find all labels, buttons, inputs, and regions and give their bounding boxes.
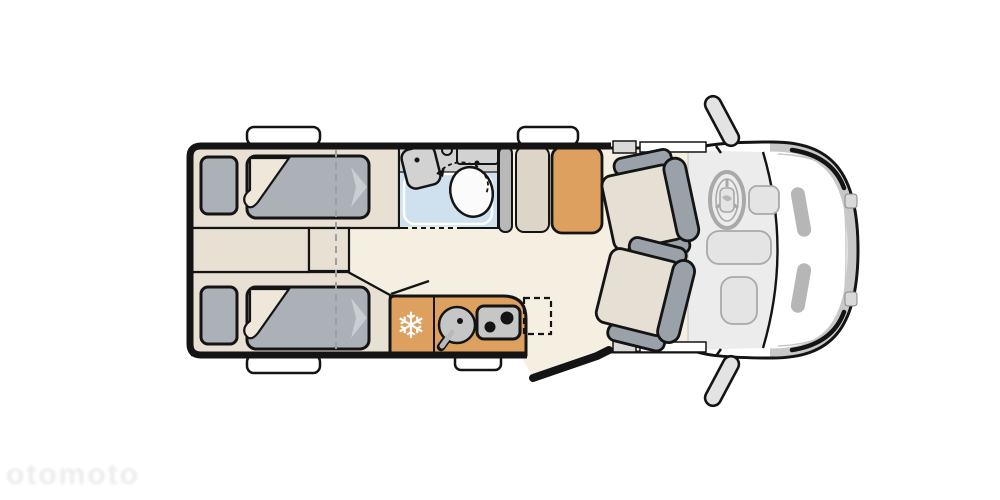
side-mirror-bottom (702, 353, 741, 408)
gear-console (749, 186, 779, 214)
basin-faucet-dot (415, 158, 420, 163)
pillow (201, 157, 237, 214)
door-window-top-large (640, 142, 706, 152)
toilet-flush-dot (475, 161, 480, 166)
dashboard-panel-mid (707, 231, 771, 264)
faucet-dot (457, 318, 463, 324)
stove (477, 306, 520, 339)
door-window-top-small (613, 141, 636, 153)
wardrobe-beige (516, 147, 549, 232)
burner-large (501, 312, 514, 325)
kitchen-sink (439, 307, 475, 343)
freezer-icon: ❄ (396, 306, 426, 347)
front-tab-lower (845, 292, 857, 306)
wardrobe-orange (552, 147, 602, 233)
burner-small (485, 322, 496, 333)
bed-bottom (201, 287, 369, 349)
front-tab-upper (845, 194, 857, 208)
roof-hatch-rear (247, 127, 320, 145)
dashboard-zone (688, 150, 779, 350)
pillow (201, 287, 237, 344)
dashboard-panel-low (721, 277, 757, 324)
floorplan-page: otomoto (0, 0, 1000, 500)
watermark: otomoto (6, 458, 140, 492)
aisle-step-small (309, 228, 349, 271)
side-mirror-top (702, 93, 741, 148)
wardrobe-gray (499, 147, 512, 232)
roof-hatch-front (518, 127, 578, 145)
bed-top (201, 156, 369, 218)
aisle-step-large (192, 228, 309, 272)
bathroom (399, 143, 498, 228)
floorplan-svg: ❄ (0, 0, 1000, 500)
